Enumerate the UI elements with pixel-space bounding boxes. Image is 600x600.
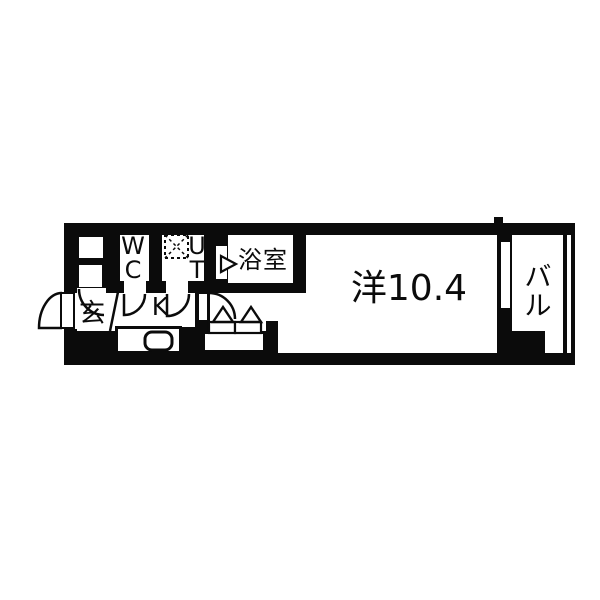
wc-door-arc <box>124 294 145 315</box>
closet-fold-triangle-left <box>213 307 233 322</box>
kitchen-label: K <box>146 294 174 320</box>
ut-label-line2: T <box>183 258 211 283</box>
closet-door-panel-right <box>235 322 261 333</box>
entrance-step-line <box>110 292 118 331</box>
closet-door-panel-left <box>209 322 235 333</box>
bathroom-label: 浴室 <box>233 248 293 273</box>
closet-fold-triangle-right <box>241 307 261 322</box>
wc-label-line2: C <box>119 258 147 283</box>
entrance-label: 玄 <box>77 300 107 328</box>
floorplan: 玄 W C U T 浴室 K 洋10.4 バ ル <box>0 0 600 600</box>
kitchen-sink <box>145 332 172 350</box>
entrance-door-arc <box>39 293 62 328</box>
balcony-label-line2: ル <box>523 293 553 321</box>
balcony-label-line1: バ <box>523 264 553 292</box>
main-room-label: 洋10.4 <box>329 270 489 308</box>
